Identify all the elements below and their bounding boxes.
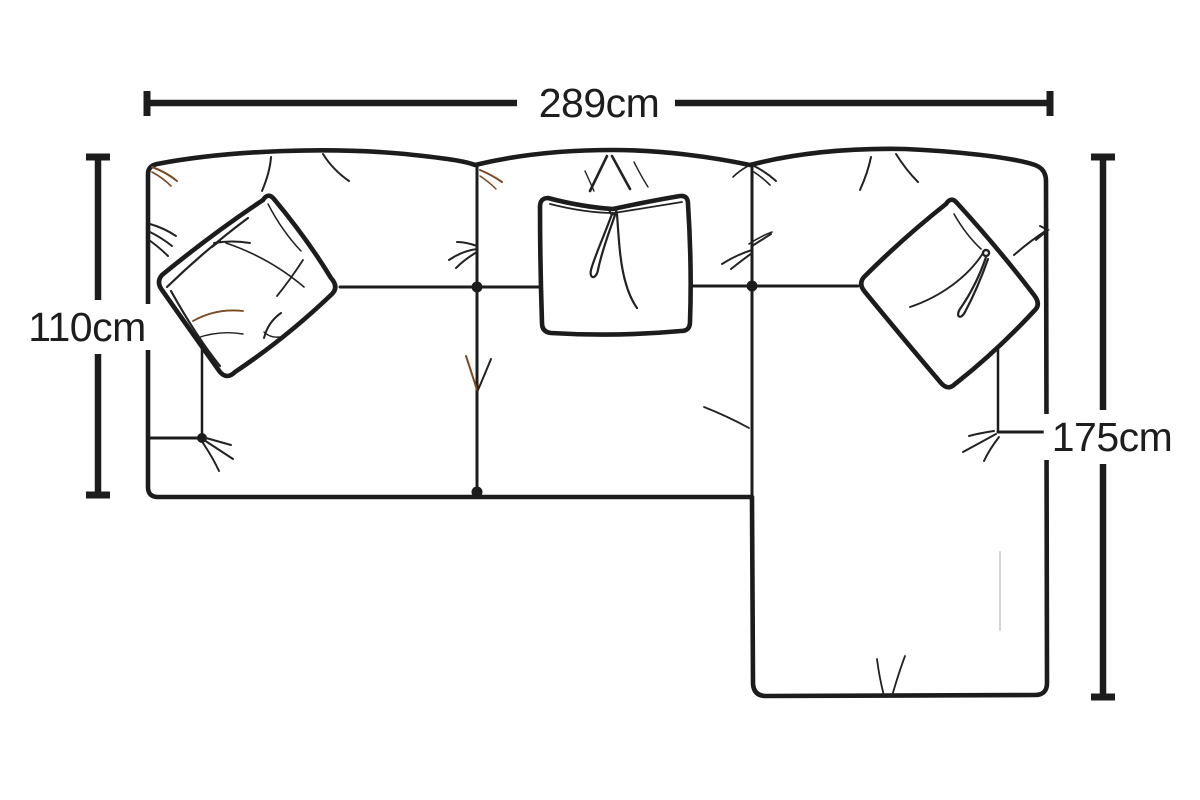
sofa-dimension-diagram: 289cm 110cm 175cm bbox=[0, 0, 1200, 800]
width-dimension-label: 289cm bbox=[531, 80, 668, 126]
depth-dimension-label: 110cm bbox=[20, 304, 154, 350]
chaise-dimension-label: 175cm bbox=[1044, 414, 1181, 460]
seam-button bbox=[747, 281, 758, 292]
seam-button bbox=[472, 487, 483, 498]
scatter-cushion-middle bbox=[540, 196, 691, 335]
scatter-cushion-right bbox=[861, 200, 1038, 388]
seam-button bbox=[472, 282, 483, 293]
scatter-cushion-left bbox=[159, 196, 335, 376]
